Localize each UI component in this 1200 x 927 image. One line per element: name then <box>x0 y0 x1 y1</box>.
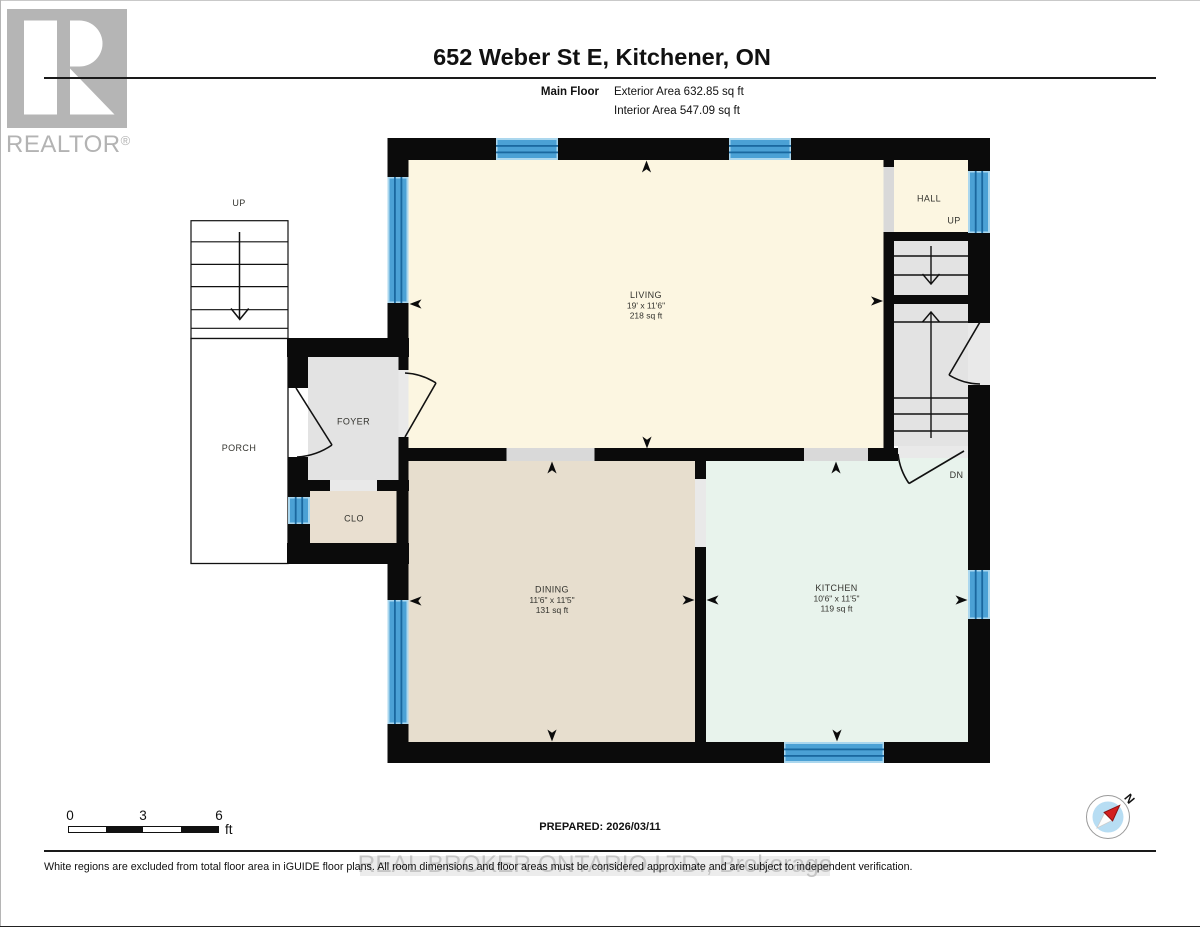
svg-text:131 sq ft: 131 sq ft <box>536 605 569 615</box>
svg-text:CLO: CLO <box>344 514 364 524</box>
svg-text:UP: UP <box>947 216 960 226</box>
svg-text:DINING: DINING <box>535 585 569 595</box>
svg-text:KITCHEN: KITCHEN <box>815 583 857 593</box>
svg-text:19' x 11'6": 19' x 11'6" <box>627 301 665 311</box>
svg-text:10'6" x 11'5": 10'6" x 11'5" <box>814 594 860 604</box>
svg-text:119 sq ft: 119 sq ft <box>821 604 854 614</box>
svg-text:UP: UP <box>232 198 245 208</box>
svg-text:DN: DN <box>950 470 964 480</box>
svg-text:HALL: HALL <box>917 194 941 204</box>
svg-text:PORCH: PORCH <box>222 443 257 453</box>
svg-text:FOYER: FOYER <box>337 417 370 427</box>
svg-text:LIVING: LIVING <box>630 290 662 300</box>
svg-text:218 sq ft: 218 sq ft <box>630 311 663 321</box>
svg-text:11'6" x 11'5": 11'6" x 11'5" <box>529 595 574 605</box>
